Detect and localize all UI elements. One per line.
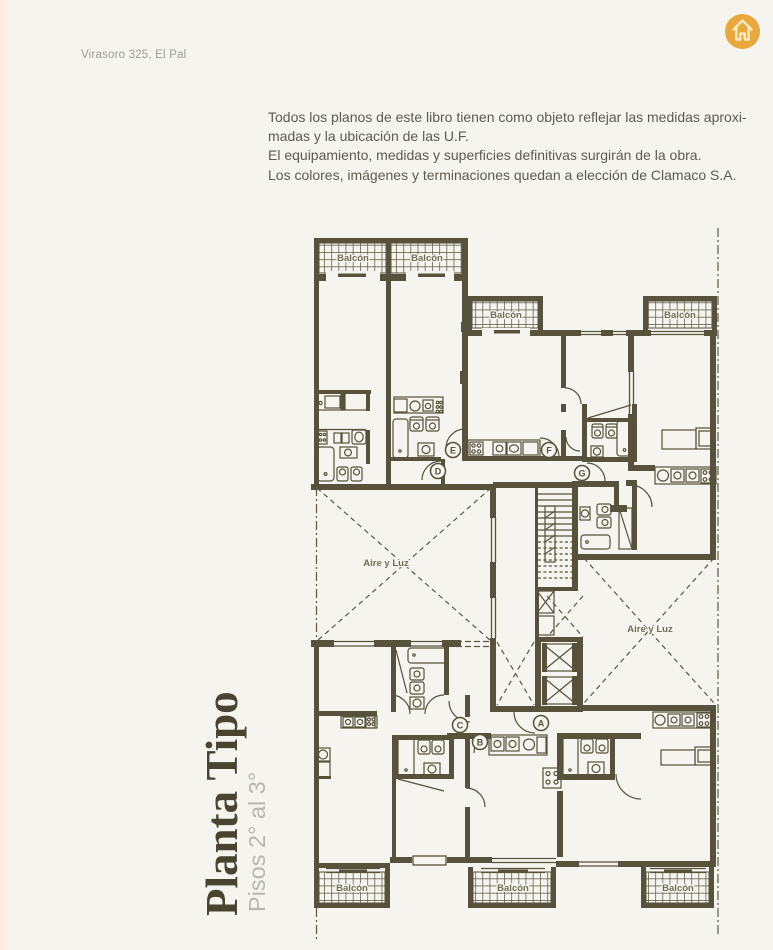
svg-text:C: C xyxy=(457,721,464,731)
svg-text:Balcón: Balcón xyxy=(664,310,696,321)
svg-text:E: E xyxy=(450,446,456,456)
svg-text:B: B xyxy=(477,738,484,748)
svg-text:D: D xyxy=(435,467,442,477)
svg-text:Balcón: Balcón xyxy=(497,883,529,894)
svg-text:A: A xyxy=(538,719,545,729)
svg-text:Aire y Luz: Aire y Luz xyxy=(627,624,673,635)
svg-text:G: G xyxy=(578,469,585,479)
svg-text:Balcón: Balcón xyxy=(337,253,369,264)
svg-text:Balcón: Balcón xyxy=(662,883,694,894)
svg-text:Balcón: Balcón xyxy=(336,883,368,894)
svg-text:Balcón: Balcón xyxy=(411,253,443,264)
svg-text:Aire y Luz: Aire y Luz xyxy=(363,558,409,569)
svg-text:F: F xyxy=(546,446,552,456)
svg-text:Balcón: Balcón xyxy=(490,310,522,321)
